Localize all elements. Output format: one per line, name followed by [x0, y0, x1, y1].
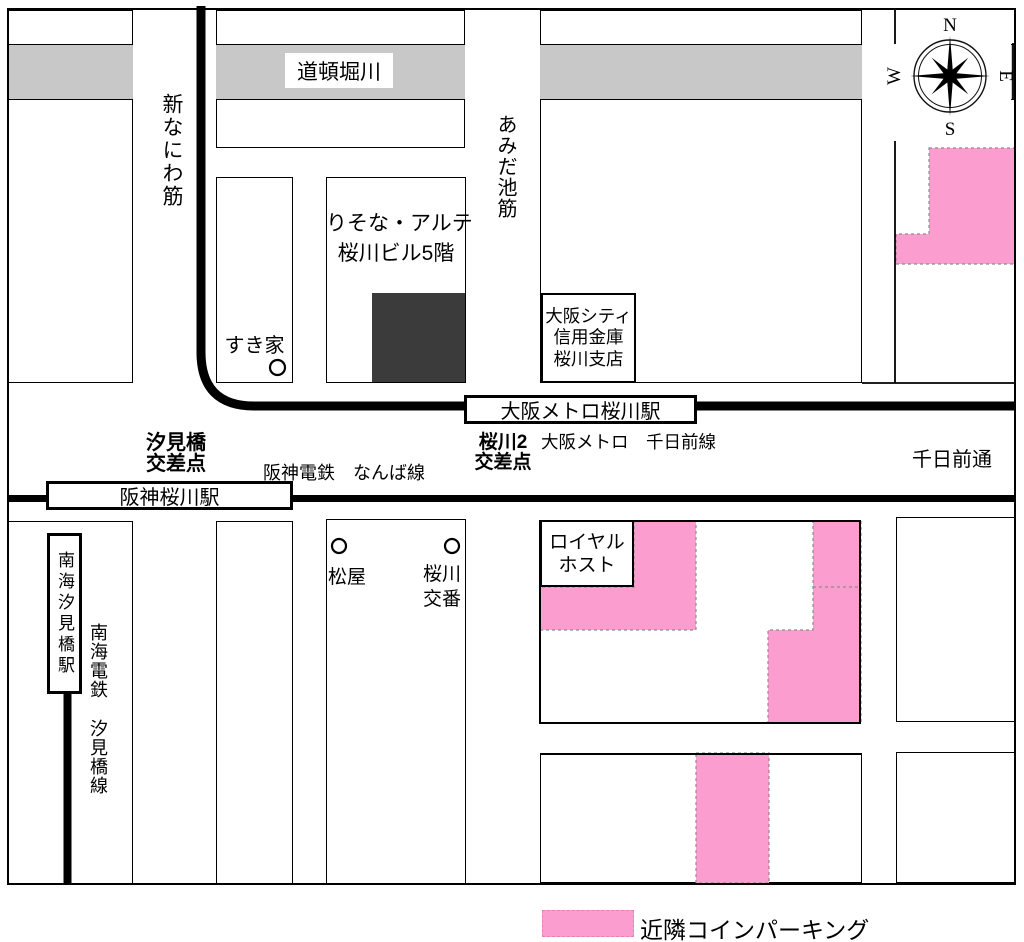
station-hanshin-label: 阪神桜川駅 — [120, 481, 220, 510]
koban-label: 桜川 交番 — [423, 562, 461, 612]
railway-nankai-company-label: 南海電鉄 — [85, 623, 111, 699]
bank-line3: 桜川支店 — [554, 349, 624, 371]
matsuya-label: 松屋 — [328, 562, 366, 589]
parking-areas — [540, 148, 1015, 883]
matsuya-marker — [332, 539, 346, 553]
intersection-sakuragawa2-label: 桜川2 交差点 — [467, 433, 539, 472]
destination-line1: りそな・アルテ — [326, 209, 466, 239]
koban-marker — [445, 539, 459, 553]
compass-s-label: S — [945, 119, 956, 140]
legend-parking-swatch — [542, 910, 634, 937]
legend-parking-label: 近隣コインパーキング — [640, 911, 869, 942]
railway-metro-label: 大阪メトロ 千日前線 — [541, 429, 716, 454]
intersection-sakuragawa2-line2: 交差点 — [467, 453, 539, 473]
destination-building — [372, 293, 465, 382]
compass-star — [910, 36, 990, 116]
parking-area-south — [696, 753, 769, 883]
royal-host-line2: ホスト — [558, 554, 615, 577]
compass-w-label: W — [884, 67, 905, 85]
sukiya-marker — [270, 360, 285, 375]
compass-n-label: N — [943, 15, 957, 36]
compass-e-label: E — [995, 70, 1016, 82]
river-label: 道頓堀川 — [285, 53, 393, 88]
access-map: N S E W 道頓堀川 大阪シティ 信用金庫 桜川支店 ロイヤル ホスト 大阪… — [0, 0, 1024, 942]
intersection-shiomibashi-line1: 汐見橋 — [146, 433, 206, 454]
parking-area-east — [768, 521, 861, 723]
royal-host-line1: ロイヤル — [549, 531, 624, 554]
intersection-shiomibashi-label: 汐見橋 交差点 — [146, 433, 206, 475]
station-nankai-shiomibashi: 南海汐見橋駅 — [47, 533, 82, 694]
railway-hanshin-label: 阪神電鉄 なんば線 — [263, 459, 425, 485]
station-metro-sakuragawa: 大阪メトロ桜川駅 — [464, 395, 697, 424]
river-label-text: 道頓堀川 — [297, 56, 381, 86]
bank-box: 大阪シティ 信用金庫 桜川支店 — [541, 293, 636, 383]
intersection-sakuragawa2-line1: 桜川2 — [467, 433, 539, 453]
parking-area-northeast — [896, 148, 1015, 264]
street-sennichimae-label: 千日前通 — [912, 443, 992, 472]
railway-nankai-line-label: 汐見橋線 — [85, 719, 111, 795]
station-hanshin-sakuragawa: 阪神桜川駅 — [46, 481, 293, 510]
bank-line1: 大阪シティ — [545, 306, 631, 328]
koban-line1: 桜川 — [423, 562, 461, 587]
destination-label: りそな・アルテ 桜川ビル5階 — [326, 209, 466, 269]
landmark-circles — [270, 360, 459, 553]
station-nankai-label: 南海汐見橋駅 — [52, 551, 77, 677]
koban-line2: 交番 — [423, 587, 461, 612]
bank-line2: 信用金庫 — [554, 327, 624, 349]
station-metro-label: 大阪メトロ桜川駅 — [501, 395, 661, 424]
street-amidaike-label: あみだ池筋 — [491, 114, 520, 219]
royal-host-box: ロイヤル ホスト — [540, 520, 634, 587]
destination-line2: 桜川ビル5階 — [326, 239, 466, 269]
compass-rose: N S E W — [884, 15, 1016, 140]
sukiya-label: すき家 — [216, 329, 293, 358]
street-shin-naniwa-label: 新なにわ筋 — [157, 93, 187, 208]
intersection-shiomibashi-line2: 交差点 — [146, 454, 206, 475]
